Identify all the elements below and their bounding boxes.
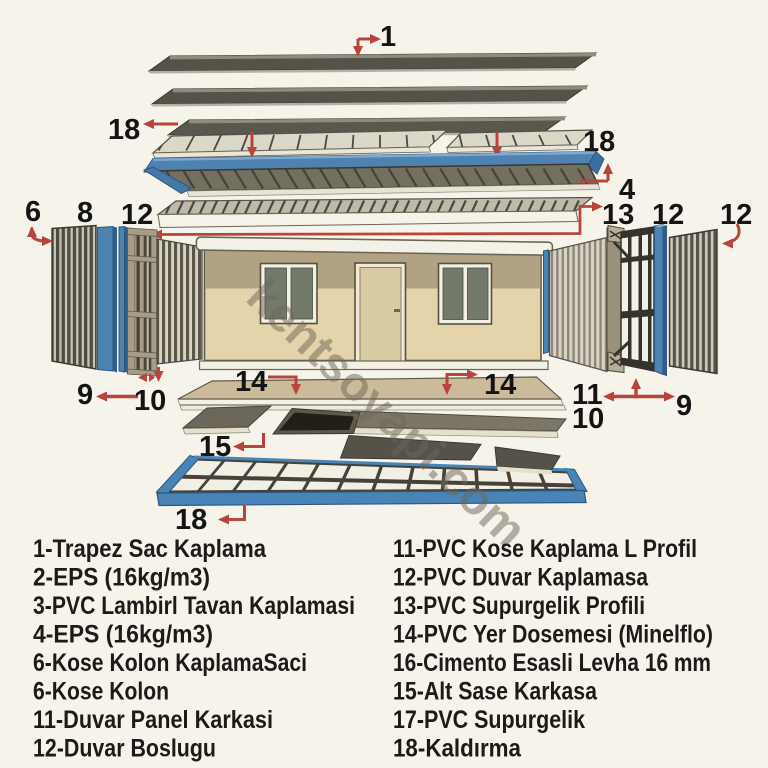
- svg-text:14: 14: [235, 366, 267, 398]
- svg-text:6-Kose Kolon KaplamaSaci: 6-Kose Kolon KaplamaSaci: [33, 649, 307, 677]
- svg-text:1: 1: [380, 21, 396, 53]
- svg-text:14-PVC Yer Dosemesi (Minelflo): 14-PVC Yer Dosemesi (Minelflo): [393, 621, 713, 649]
- svg-text:4-EPS (16kg/m3): 4-EPS (16kg/m3): [33, 621, 213, 649]
- svg-text:14: 14: [484, 369, 516, 401]
- svg-text:13-PVC Supurgelik Profili: 13-PVC Supurgelik Profili: [393, 592, 645, 620]
- svg-text:18: 18: [175, 504, 207, 536]
- svg-text:16-Cimento Esasli Levha 16 mm: 16-Cimento Esasli Levha 16 mm: [393, 649, 711, 677]
- svg-text:12-Duvar Boslugu: 12-Duvar Boslugu: [33, 735, 216, 763]
- svg-text:17-PVC Supurgelik: 17-PVC Supurgelik: [393, 706, 585, 734]
- svg-text:11-PVC Kose Kaplama L Profil: 11-PVC Kose Kaplama L Profil: [393, 535, 697, 563]
- svg-text:11-Duvar Panel Karkasi: 11-Duvar Panel Karkasi: [33, 706, 273, 734]
- svg-text:10: 10: [134, 385, 166, 417]
- svg-text:9: 9: [676, 390, 692, 422]
- svg-text:6: 6: [25, 196, 41, 228]
- svg-text:18-Kaldırma: 18-Kaldırma: [393, 735, 522, 763]
- svg-text:12: 12: [720, 199, 752, 231]
- svg-text:13: 13: [602, 199, 634, 231]
- svg-text:3-PVC Lambirl Tavan Kaplamasi: 3-PVC Lambirl Tavan Kaplamasi: [33, 592, 355, 620]
- svg-text:10: 10: [572, 403, 604, 435]
- svg-text:6-Kose Kolon: 6-Kose Kolon: [33, 678, 169, 706]
- svg-text:18: 18: [108, 114, 140, 146]
- svg-text:9: 9: [77, 379, 93, 411]
- svg-text:2-EPS (16kg/m3): 2-EPS (16kg/m3): [33, 564, 210, 592]
- svg-text:15-Alt Sase Karkasa: 15-Alt Sase Karkasa: [393, 678, 598, 706]
- svg-text:1-Trapez Sac Kaplama: 1-Trapez Sac Kaplama: [33, 535, 267, 563]
- svg-text:12: 12: [121, 199, 153, 231]
- svg-text:12-PVC Duvar Kaplamasa: 12-PVC Duvar Kaplamasa: [393, 564, 649, 592]
- svg-text:8: 8: [77, 197, 93, 229]
